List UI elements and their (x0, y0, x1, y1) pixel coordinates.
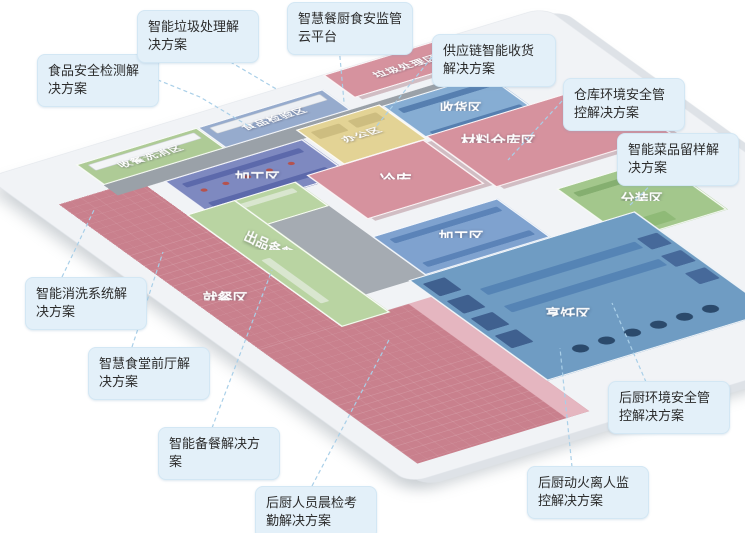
zone-material-warehouse-label: 材料仓库区 (461, 131, 536, 152)
callout-smart-meal-prep: 智能备餐解决方案 (158, 427, 280, 480)
zone-cold-storage-label: 冷库 (379, 167, 411, 191)
callout-dish-sample-retention: 智能菜品留样解决方案 (617, 133, 739, 186)
zone-dining-label: 就餐区 (203, 288, 248, 309)
callout-warehouse-env-safety: 仓库环境安全管控解决方案 (563, 78, 685, 131)
cooking-unit (471, 312, 510, 331)
callout-cloud-platform: 智慧餐厨食安监管云平台 (287, 2, 413, 55)
callout-kitchen-env-safety: 后厨环境安全管控解决方案 (608, 381, 730, 434)
callout-supply-chain-receiving: 供应链智能收货解决方案 (432, 34, 556, 87)
callout-front-hall: 智慧食堂前厅解决方案 (88, 347, 210, 400)
callout-fire-unattended-monitor: 后厨动火离人监控解决方案 (527, 466, 649, 519)
callout-smart-washing: 智能消洗系统解决方案 (25, 277, 147, 330)
callout-staff-morning-check: 后厨人员晨检考勤解决方案 (255, 486, 377, 533)
zone-receiving-label: 收货区 (439, 99, 481, 119)
callout-smart-waste: 智能垃圾处理解决方案 (137, 10, 259, 63)
stool (199, 188, 209, 193)
smart-canteen-diagram: 就餐区 收餐洗消区 食品检验区 垃圾处理区 (0, 0, 745, 533)
cooking-unit (423, 277, 462, 296)
